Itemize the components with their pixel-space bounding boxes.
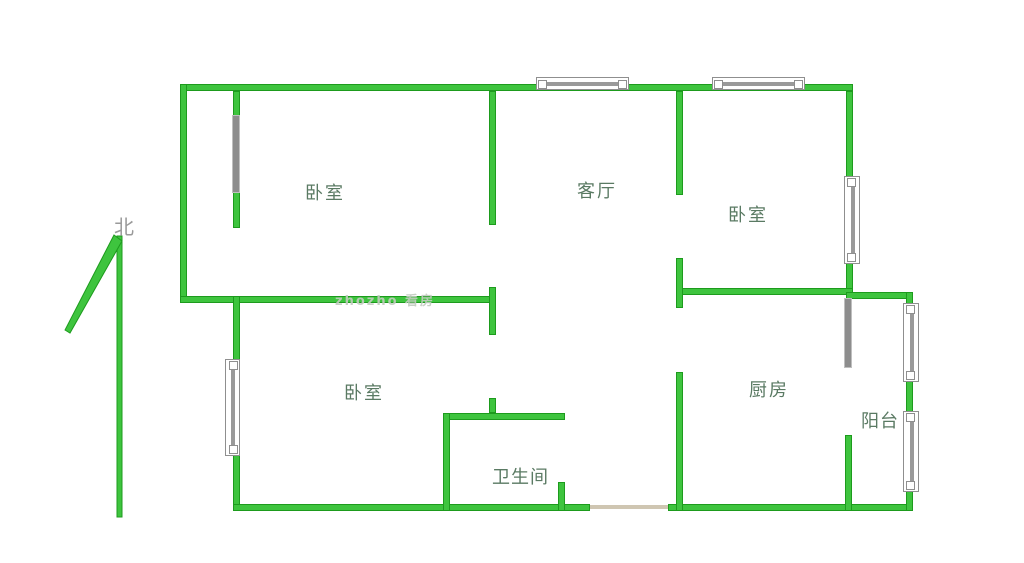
window-glass-line xyxy=(543,82,622,86)
north-arrow-icon xyxy=(55,228,130,523)
room-label-bedroom-bottom: 卧室 xyxy=(344,379,384,405)
room-label-bedroom-top-left: 卧室 xyxy=(305,179,345,205)
window-glass-line xyxy=(719,82,798,86)
window-end-cap xyxy=(714,80,723,89)
room-label-living-room: 客厅 xyxy=(577,177,617,203)
room-label-balcony: 阳台 xyxy=(861,407,899,433)
window-bedroom2-right xyxy=(844,176,860,264)
room-label-kitchen: 厨房 xyxy=(749,376,789,402)
wall-bottom-right xyxy=(668,504,913,511)
room-label-bedroom-top-right: 卧室 xyxy=(728,201,768,227)
window-glass-line xyxy=(231,366,235,449)
kitchen-balcony-door-panel xyxy=(844,298,852,368)
room-label-bathroom: 卫生间 xyxy=(492,463,549,489)
window-end-cap xyxy=(906,371,915,380)
wall-bathroom-top xyxy=(443,413,565,420)
watermark-text: zhozho 看房 xyxy=(335,290,435,309)
entrance-threshold xyxy=(590,505,668,509)
window-top-2 xyxy=(712,77,805,90)
closet-door-panel xyxy=(232,115,240,193)
window-end-cap xyxy=(229,361,238,370)
window-glass-line xyxy=(910,310,914,375)
wall-kitchen-balcony-lower xyxy=(845,435,852,511)
wall-kitchen-top xyxy=(676,288,853,295)
window-end-cap xyxy=(618,80,627,89)
window-end-cap xyxy=(847,253,856,262)
window-end-cap xyxy=(906,481,915,490)
window-end-cap xyxy=(847,178,856,187)
window-end-cap xyxy=(906,413,915,422)
window-balcony-upper xyxy=(903,303,919,382)
wall-hall-kitchen xyxy=(676,372,683,511)
north-label: 北 xyxy=(114,211,134,240)
wall-bathroom-left xyxy=(443,413,450,511)
wall-living-right-upper xyxy=(676,91,683,195)
wall-bedroom3-door-stub xyxy=(489,398,496,413)
window-end-cap xyxy=(794,80,803,89)
window-glass-line xyxy=(910,418,914,485)
window-bedroom3-left xyxy=(225,359,240,456)
wall-bathroom-door-stub xyxy=(558,482,565,511)
wall-bedroom1-living-lower xyxy=(489,287,496,335)
window-end-cap xyxy=(229,445,238,454)
window-glass-line xyxy=(851,183,855,257)
wall-left-exterior xyxy=(180,84,187,303)
window-end-cap xyxy=(906,305,915,314)
window-end-cap xyxy=(538,80,547,89)
wall-balcony-top xyxy=(846,292,913,299)
floor-plan: 北 卧室 客厅 卧室 卧室 卫生间 厨房 阳台 zhozho 看房 xyxy=(0,0,1024,563)
wall-bottom-left xyxy=(233,504,590,511)
wall-bedroom1-living-upper xyxy=(489,91,496,225)
wall-living-right-mid xyxy=(676,258,683,308)
window-balcony-lower xyxy=(903,411,919,492)
window-top-1 xyxy=(536,77,629,90)
